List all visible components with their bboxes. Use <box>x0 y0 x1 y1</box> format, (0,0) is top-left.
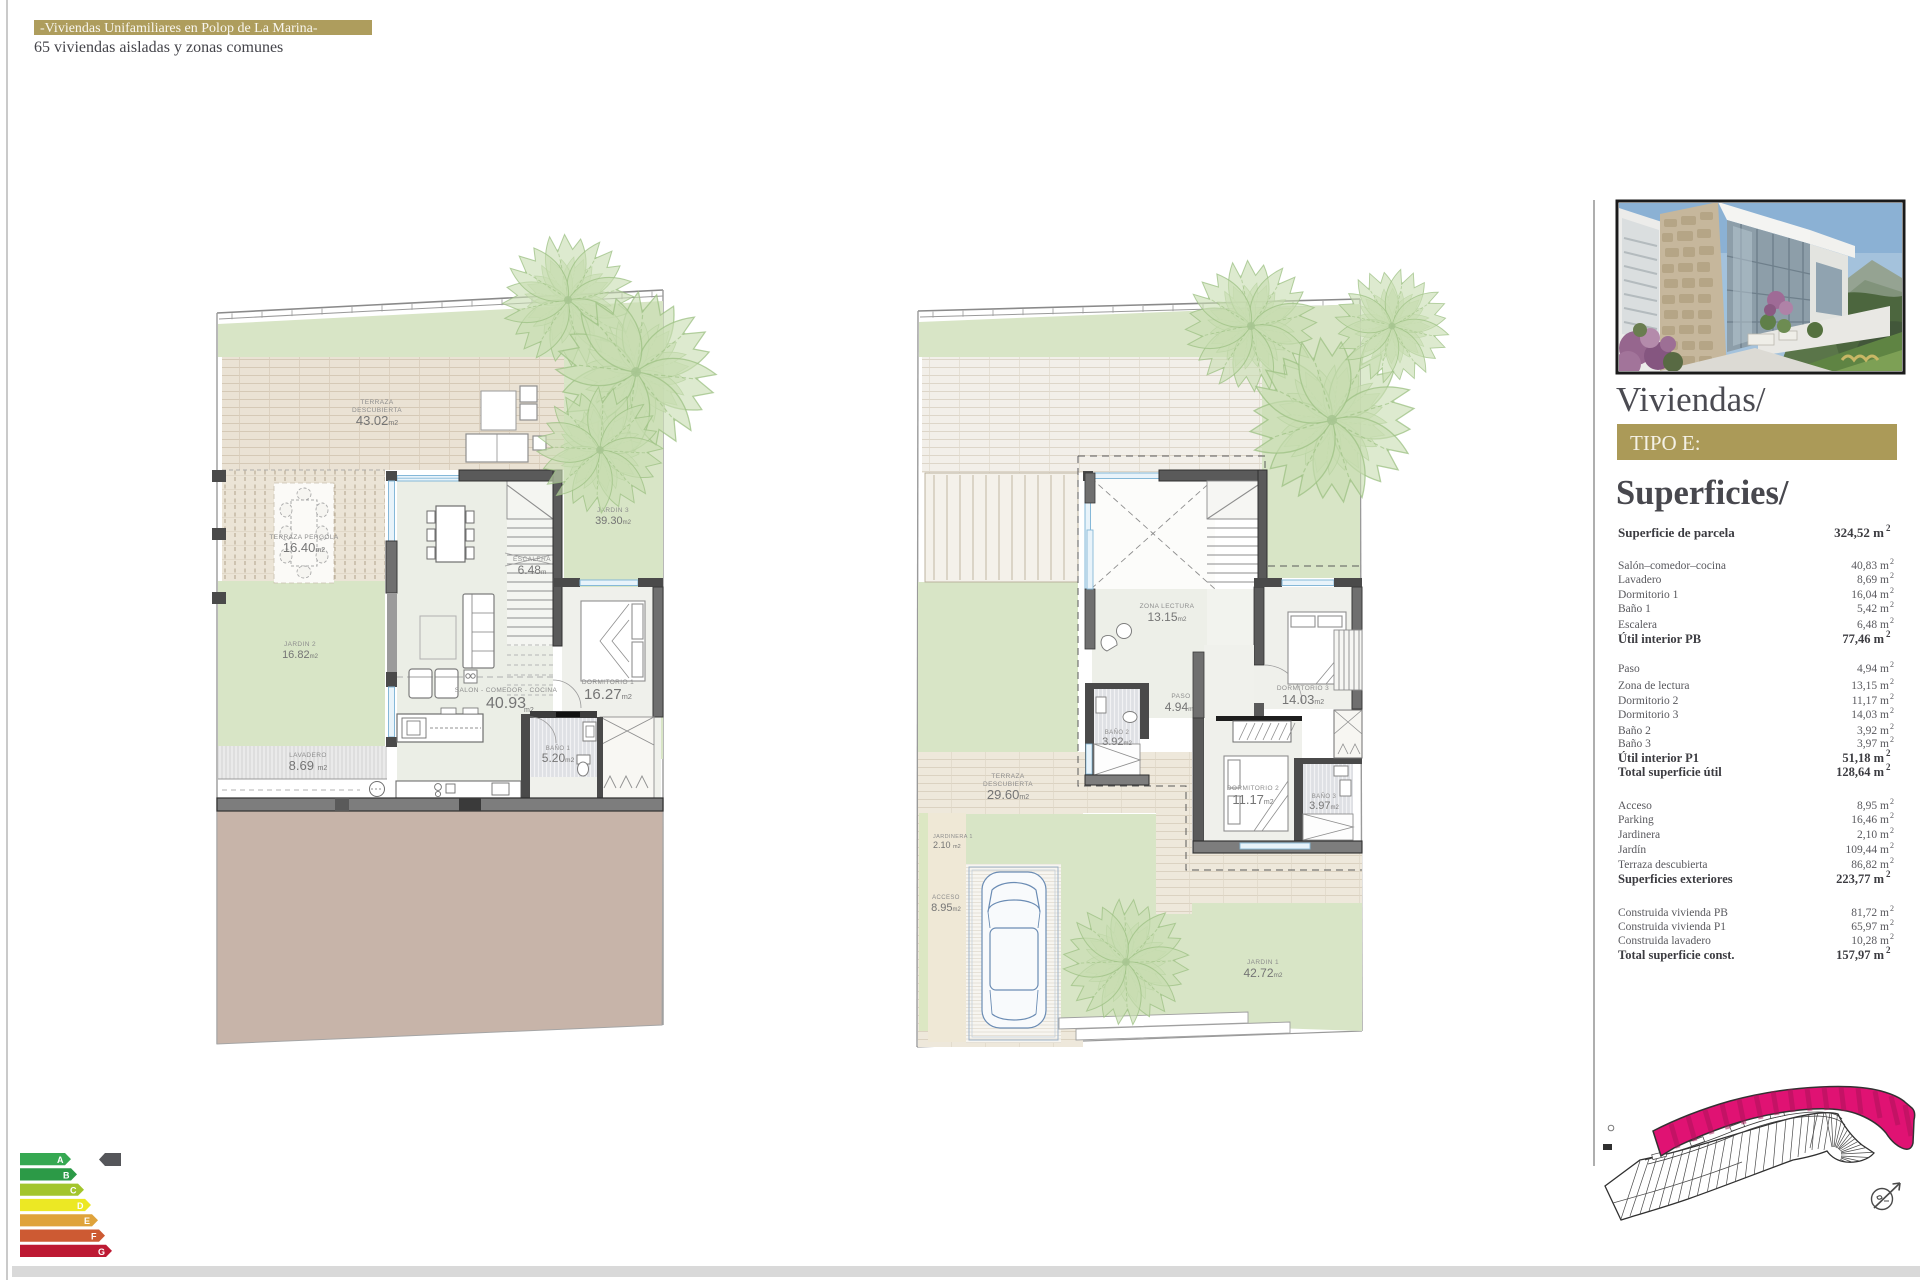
svg-text:Zona de lectura: Zona de lectura <box>1618 680 1690 692</box>
svg-text:TERRAZA: TERRAZA <box>360 399 393 406</box>
svg-text:PASO: PASO <box>1171 693 1190 700</box>
svg-text:2: 2 <box>1890 811 1894 820</box>
svg-text:Útil interior PB: Útil interior PB <box>1618 632 1701 646</box>
svg-text:2: 2 <box>1886 762 1891 772</box>
svg-text:2: 2 <box>1886 748 1891 758</box>
svg-text:13,15 m: 13,15 m <box>1851 680 1889 692</box>
svg-text:Lavadero: Lavadero <box>1618 574 1662 586</box>
svg-text:2: 2 <box>1890 586 1894 595</box>
svg-text:Jardín: Jardín <box>1618 844 1646 856</box>
svg-text:Construida lavadero: Construida lavadero <box>1618 935 1711 947</box>
svg-text:8,95 m: 8,95 m <box>1857 800 1889 812</box>
svg-text:D: D <box>77 1201 84 1211</box>
svg-text:2: 2 <box>1890 932 1894 941</box>
svg-text:Construida vivienda P1: Construida vivienda P1 <box>1618 921 1726 933</box>
svg-text:Superficies/: Superficies/ <box>1616 474 1789 512</box>
svg-text:2: 2 <box>1890 692 1894 701</box>
svg-text:2: 2 <box>1890 826 1894 835</box>
svg-text:3,92 m: 3,92 m <box>1857 725 1889 737</box>
svg-text:JARDIN 2: JARDIN 2 <box>284 641 316 648</box>
svg-text:E: E <box>84 1216 90 1226</box>
svg-text:2: 2 <box>1890 856 1894 865</box>
svg-text:2: 2 <box>1890 918 1894 927</box>
svg-text:JARDIN 1: JARDIN 1 <box>1247 959 1279 966</box>
svg-text:Terraza descubierta: Terraza descubierta <box>1618 859 1708 871</box>
svg-text:C: C <box>70 1186 77 1196</box>
svg-text:2: 2 <box>1890 571 1894 580</box>
svg-text:A: A <box>57 1155 64 1165</box>
svg-text:SALON - COMEDOR - COCINA: SALON - COMEDOR - COCINA <box>455 687 558 694</box>
svg-text:2: 2 <box>1890 600 1894 609</box>
svg-text:DORMITORIO 1: DORMITORIO 1 <box>582 679 634 686</box>
svg-text:65 viviendas aisladas y zonas: 65 viviendas aisladas y zonas comunes <box>34 39 283 56</box>
svg-text:223,77 m: 223,77 m <box>1836 872 1885 886</box>
svg-text:2: 2 <box>1886 945 1891 955</box>
svg-text:Superficies exteriores: Superficies exteriores <box>1618 872 1733 886</box>
svg-text:65,97 m: 65,97 m <box>1851 921 1889 933</box>
svg-text:4,94 m: 4,94 m <box>1857 663 1889 675</box>
svg-text:2: 2 <box>1890 557 1894 566</box>
svg-text:77,46 m: 77,46 m <box>1842 632 1884 646</box>
svg-text:2: 2 <box>1886 629 1891 639</box>
svg-text:Superficie de parcela: Superficie de parcela <box>1618 525 1735 540</box>
svg-text:Total superficie útil: Total superficie útil <box>1618 765 1722 779</box>
svg-text:2: 2 <box>1890 677 1894 686</box>
svg-text:2: 2 <box>1890 904 1894 913</box>
svg-text:10,28 m: 10,28 m <box>1851 935 1889 947</box>
svg-text:Total superficie const.: Total superficie const. <box>1618 948 1735 962</box>
svg-text:ZONA LECTURA: ZONA LECTURA <box>1140 603 1195 610</box>
svg-text:-Viviendas Unifamiliares en Po: -Viviendas Unifamiliares en Polop de La … <box>40 21 318 36</box>
svg-text:8,69 m: 8,69 m <box>1857 574 1889 586</box>
svg-text:Acceso: Acceso <box>1618 800 1652 812</box>
svg-text:2: 2 <box>1886 523 1891 533</box>
svg-text:Baño 2: Baño 2 <box>1618 725 1651 737</box>
svg-text:TIPO E:: TIPO E: <box>1630 431 1701 455</box>
svg-text:Parking: Parking <box>1618 814 1654 826</box>
svg-text:Salón–comedor–cocina: Salón–comedor–cocina <box>1618 560 1726 572</box>
svg-text:128,64 m: 128,64 m <box>1836 765 1885 779</box>
svg-text:Dormitorio 2: Dormitorio 2 <box>1618 695 1679 707</box>
svg-text:324,52 m: 324,52 m <box>1834 525 1884 540</box>
svg-text:ACCESO: ACCESO <box>932 895 960 901</box>
svg-text:40.93: 40.93 <box>486 695 526 712</box>
svg-text:2: 2 <box>1890 660 1894 669</box>
svg-text:B: B <box>63 1170 70 1180</box>
svg-text:16,46 m: 16,46 m <box>1851 814 1889 826</box>
svg-text:DORMITORIO 3: DORMITORIO 3 <box>1277 685 1329 692</box>
svg-text:Dormitorio 1: Dormitorio 1 <box>1618 589 1679 601</box>
svg-text:Viviendas/: Viviendas/ <box>1616 380 1766 419</box>
svg-text:Dormitorio 3: Dormitorio 3 <box>1618 709 1679 721</box>
svg-text:Escalera: Escalera <box>1618 619 1657 631</box>
svg-text:F: F <box>91 1232 97 1242</box>
svg-text:Baño 1: Baño 1 <box>1618 603 1651 615</box>
svg-text:BAÑO 3: BAÑO 3 <box>1312 793 1337 800</box>
svg-text:2: 2 <box>1890 722 1894 731</box>
svg-text:6,48 m: 6,48 m <box>1857 619 1889 631</box>
svg-text:BAÑO 2: BAÑO 2 <box>1105 729 1130 736</box>
svg-text:81,72 m: 81,72 m <box>1851 907 1889 919</box>
svg-text:109,44 m: 109,44 m <box>1846 844 1890 856</box>
svg-text:2: 2 <box>1890 706 1894 715</box>
svg-text:2: 2 <box>1890 797 1894 806</box>
svg-text:G: G <box>98 1247 105 1257</box>
svg-text:5,42 m: 5,42 m <box>1857 603 1889 615</box>
svg-text:51,18 m: 51,18 m <box>1842 751 1884 765</box>
svg-text:11,17 m: 11,17 m <box>1852 695 1889 707</box>
svg-text:DORMITORIO 2: DORMITORIO 2 <box>1227 785 1279 792</box>
svg-text:2,10 m: 2,10 m <box>1857 829 1889 841</box>
svg-text:Útil interior P1: Útil interior P1 <box>1618 751 1699 765</box>
svg-text:2: 2 <box>1886 869 1891 879</box>
svg-text:Baño 3: Baño 3 <box>1618 738 1651 750</box>
svg-text:157,97 m: 157,97 m <box>1836 948 1885 962</box>
svg-text:3,97 m: 3,97 m <box>1857 738 1889 750</box>
svg-text:Construida vivienda PB: Construida vivienda PB <box>1618 907 1728 919</box>
svg-text:Paso: Paso <box>1618 663 1640 675</box>
svg-text:86,82 m: 86,82 m <box>1851 859 1889 871</box>
svg-text:14,03 m: 14,03 m <box>1851 709 1889 721</box>
svg-text:2: 2 <box>1890 735 1894 744</box>
svg-text:40,83 m: 40,83 m <box>1851 560 1889 572</box>
svg-text:2: 2 <box>1890 841 1894 850</box>
svg-text:16,04 m: 16,04 m <box>1851 589 1889 601</box>
svg-text:Jardinera: Jardinera <box>1618 829 1660 841</box>
svg-text:TERRAZA: TERRAZA <box>991 773 1024 780</box>
svg-text:2: 2 <box>1890 616 1894 625</box>
